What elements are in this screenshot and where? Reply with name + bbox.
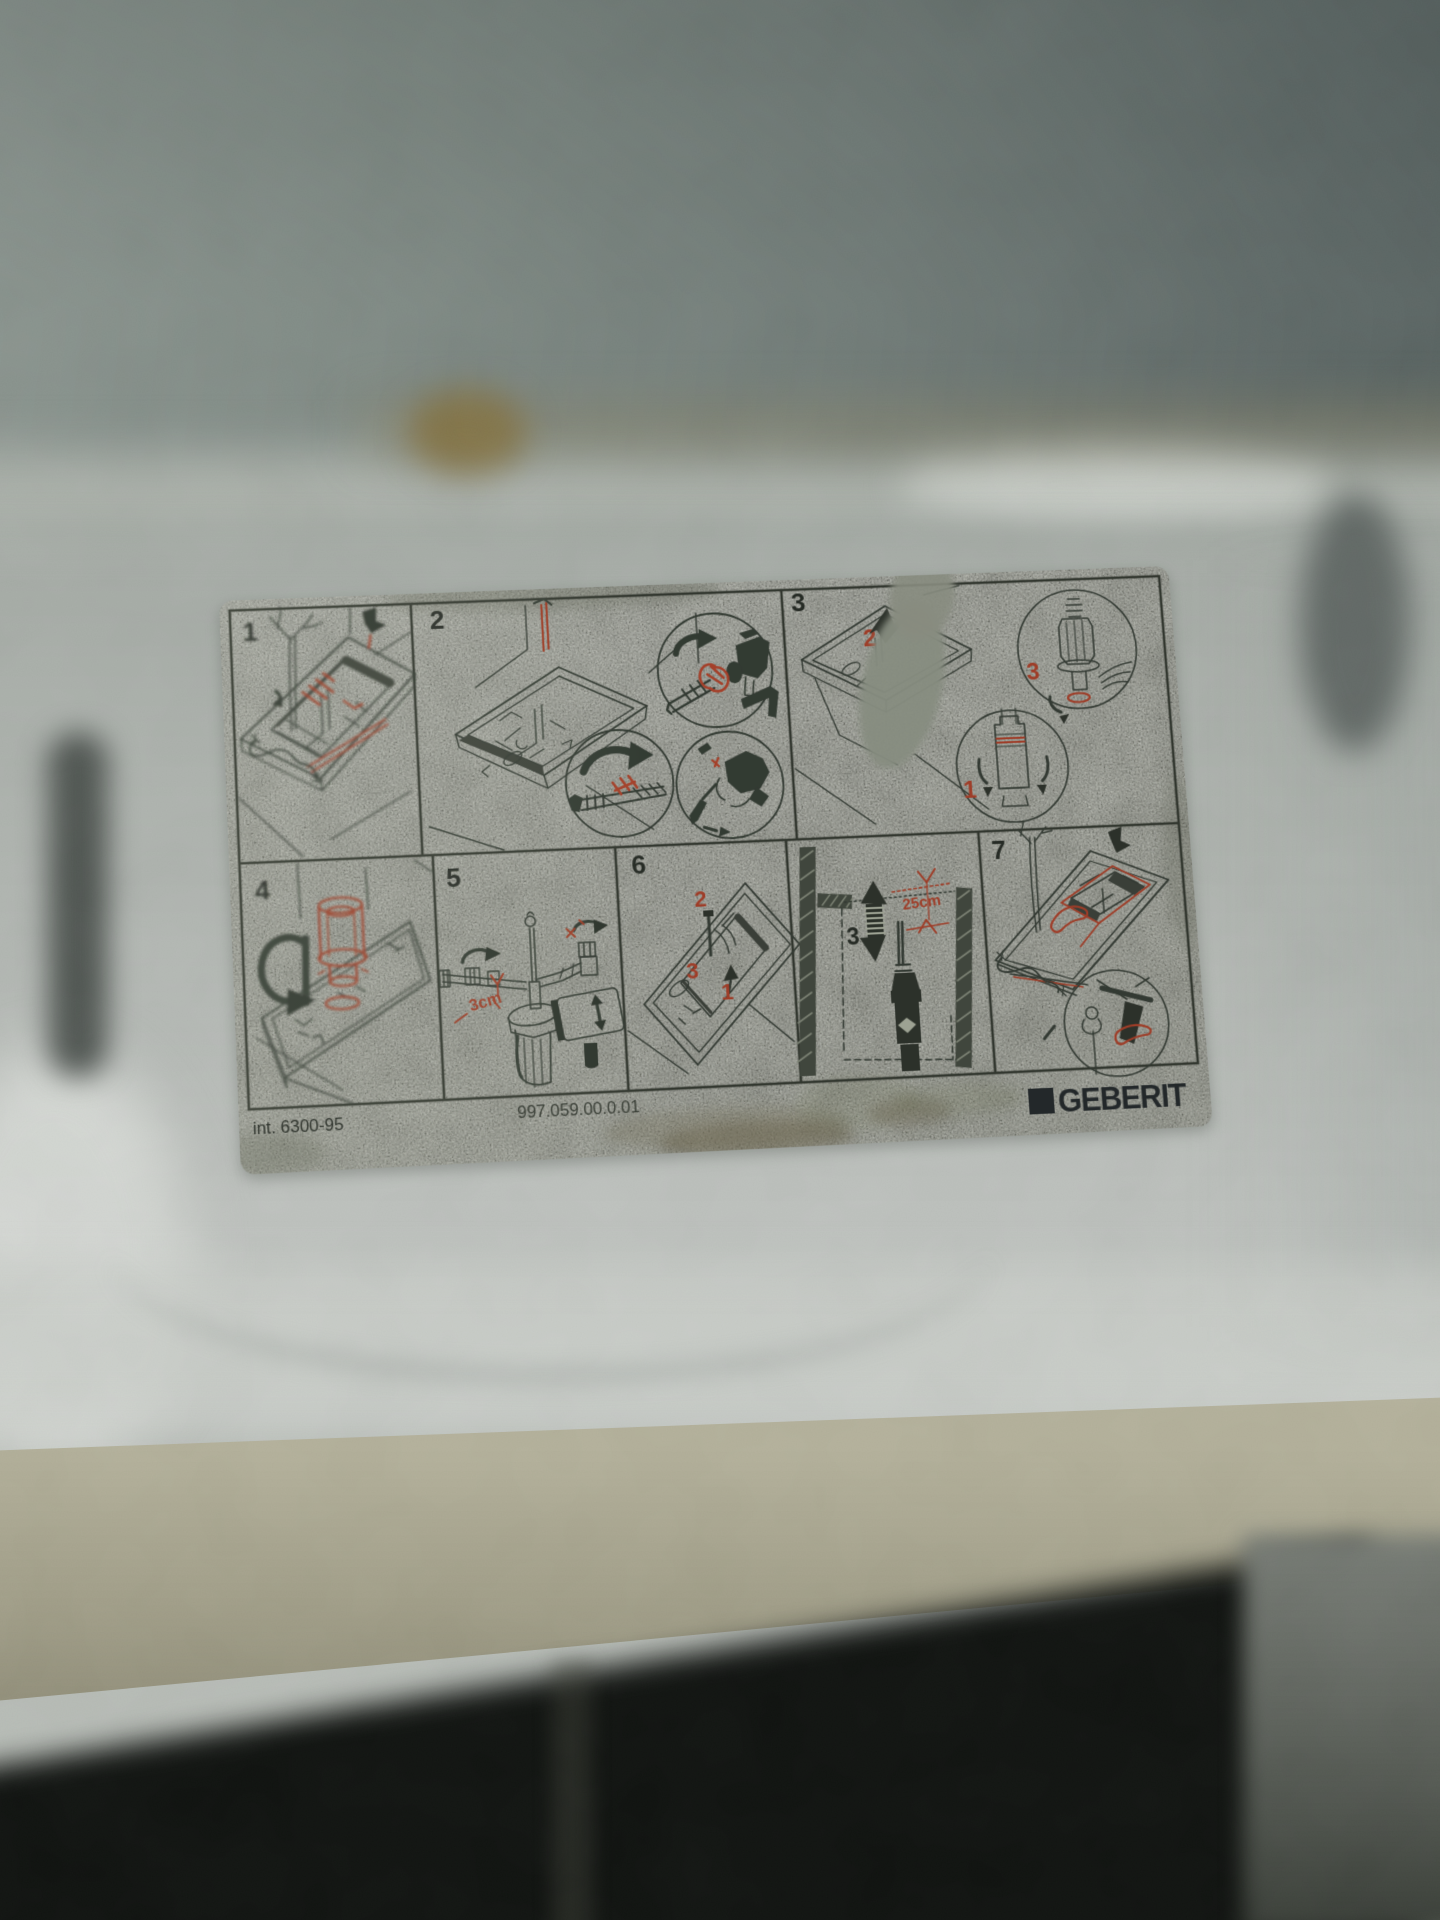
svg-text:3: 3 [1025, 659, 1040, 686]
svg-text:1: 1 [962, 777, 977, 805]
svg-text:2: 2 [694, 886, 708, 912]
svg-text:3: 3 [790, 587, 806, 617]
svg-text:3: 3 [846, 923, 861, 950]
svg-text:GEBERIT: GEBERIT [1057, 1078, 1189, 1119]
svg-text:1: 1 [720, 979, 734, 1005]
svg-text:7: 7 [991, 835, 1008, 866]
svg-text:3: 3 [686, 958, 700, 984]
